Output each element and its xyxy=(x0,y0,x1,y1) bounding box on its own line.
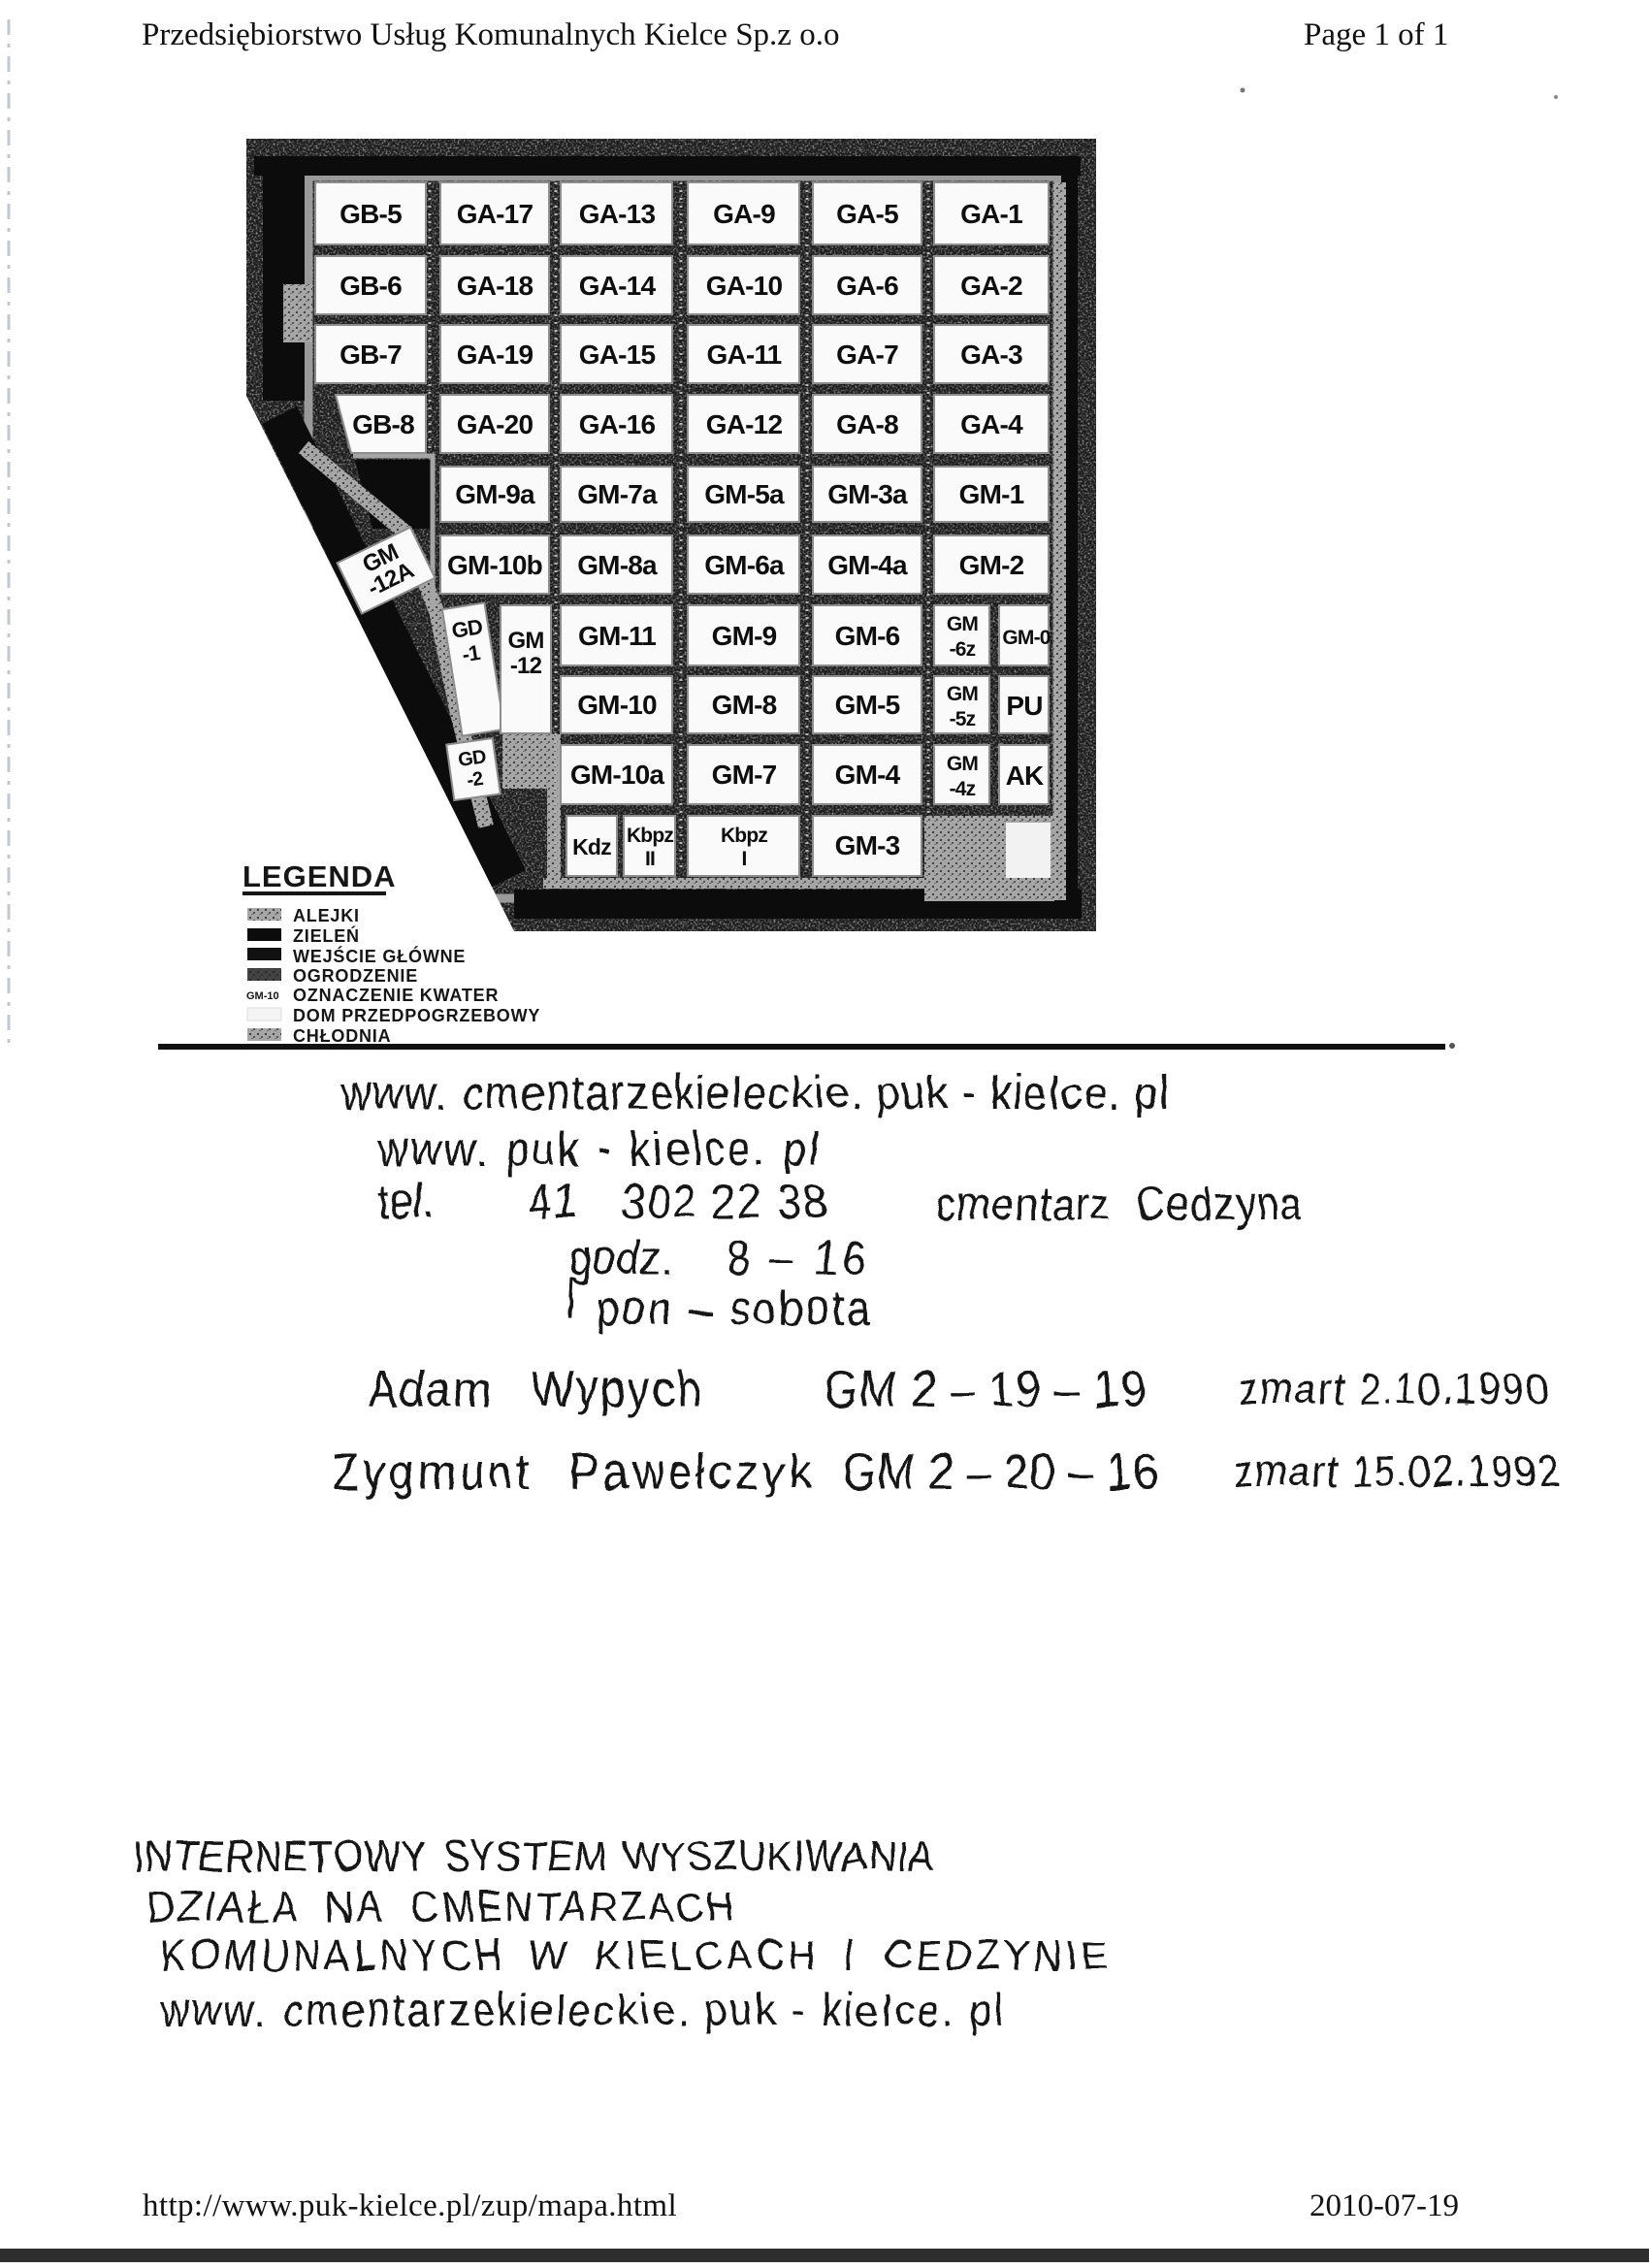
svg-text:GA-6: GA-6 xyxy=(836,271,898,301)
svg-text:GB-8: GB-8 xyxy=(352,409,414,439)
svg-text:GM-6: GM-6 xyxy=(835,621,900,651)
svg-text:GM-3: GM-3 xyxy=(835,830,900,860)
svg-text:GA-13: GA-13 xyxy=(579,199,656,229)
svg-text:GM-7: GM-7 xyxy=(712,760,777,790)
svg-text:ZIELEŃ: ZIELEŃ xyxy=(293,925,360,946)
svg-text:GM-4: GM-4 xyxy=(835,760,901,790)
svg-text:LEGENDA: LEGENDA xyxy=(242,859,397,893)
svg-text:GM-5a: GM-5a xyxy=(704,479,785,509)
svg-text:GM-10b: GM-10b xyxy=(447,550,542,580)
svg-text:GA-19: GA-19 xyxy=(457,340,533,370)
svg-text:GM-2: GM-2 xyxy=(959,550,1024,580)
svg-text:Kbpz: Kbpz xyxy=(721,825,767,847)
svg-text:GM-3a: GM-3a xyxy=(827,479,908,509)
svg-text:-4z: -4z xyxy=(950,778,976,800)
svg-text:GM: GM xyxy=(947,613,979,635)
svg-text:ALEJKI: ALEJKI xyxy=(293,906,360,925)
svg-text:GA-5: GA-5 xyxy=(836,199,898,229)
svg-text:GM-4a: GM-4a xyxy=(827,550,908,580)
svg-text:GA-7: GA-7 xyxy=(836,340,898,370)
svg-text:Kdz: Kdz xyxy=(572,834,611,859)
svg-text:GA-14: GA-14 xyxy=(579,271,657,301)
svg-text:GA-16: GA-16 xyxy=(579,409,656,439)
svg-text:GA-10: GA-10 xyxy=(706,271,783,301)
svg-text:GB-7: GB-7 xyxy=(339,340,402,370)
svg-text:GD: GD xyxy=(457,746,488,771)
svg-text:DOM PRZEDPOGRZEBOWY: DOM PRZEDPOGRZEBOWY xyxy=(293,1006,540,1025)
svg-text:-6z: -6z xyxy=(950,638,976,661)
svg-text:GM-10: GM-10 xyxy=(246,990,279,1002)
svg-text:-5z: -5z xyxy=(950,708,976,730)
svg-text:GM-5: GM-5 xyxy=(835,690,900,720)
svg-text:-12: -12 xyxy=(510,653,542,679)
svg-text:Kbpz: Kbpz xyxy=(627,825,673,847)
svg-text:GM: GM xyxy=(947,683,979,705)
svg-text:GM-9: GM-9 xyxy=(712,621,777,651)
svg-text:GM-10a: GM-10a xyxy=(570,760,665,790)
svg-text:OGRODZENIE: OGRODZENIE xyxy=(293,966,418,986)
svg-text:PU: PU xyxy=(1006,691,1042,721)
svg-text:AK: AK xyxy=(1006,761,1044,791)
svg-text:GA-12: GA-12 xyxy=(706,409,783,439)
svg-text:GM-8a: GM-8a xyxy=(577,550,658,580)
svg-text:GM: GM xyxy=(507,628,543,654)
svg-text:GB-6: GB-6 xyxy=(339,271,402,301)
svg-text:GM-0: GM-0 xyxy=(1002,627,1050,649)
svg-text:GD: GD xyxy=(450,614,484,643)
svg-text:GM-10: GM-10 xyxy=(577,690,657,720)
svg-text:GA-17: GA-17 xyxy=(457,199,533,229)
svg-text:GA-2: GA-2 xyxy=(960,271,1022,301)
svg-text:GA-9: GA-9 xyxy=(713,199,775,229)
svg-text:GM: GM xyxy=(947,753,979,775)
svg-text:GM-8: GM-8 xyxy=(712,690,777,720)
svg-text:GA-20: GA-20 xyxy=(457,409,533,439)
svg-text:GM-7a: GM-7a xyxy=(577,479,658,509)
svg-text:GA-3: GA-3 xyxy=(960,340,1022,370)
svg-text:GM-11: GM-11 xyxy=(578,621,656,651)
svg-text:I: I xyxy=(741,848,746,870)
svg-text:GA-4: GA-4 xyxy=(960,409,1023,439)
svg-text:GB-5: GB-5 xyxy=(339,199,402,229)
svg-text:GM-9a: GM-9a xyxy=(455,479,535,509)
svg-text:GA-8: GA-8 xyxy=(836,409,898,439)
svg-text:GM-1: GM-1 xyxy=(959,479,1024,509)
svg-text:CHŁODNIA: CHŁODNIA xyxy=(293,1026,391,1046)
svg-text:WEJŚCIE GŁÓWNE: WEJŚCIE GŁÓWNE xyxy=(293,946,466,966)
svg-text:II: II xyxy=(645,848,655,870)
svg-text:GA-1: GA-1 xyxy=(960,199,1022,229)
svg-text:GA-11: GA-11 xyxy=(707,340,782,370)
svg-text:GM-6a: GM-6a xyxy=(704,550,785,580)
svg-text:GA-18: GA-18 xyxy=(457,271,533,301)
svg-text:OZNACZENIE KWATER: OZNACZENIE KWATER xyxy=(293,986,499,1005)
svg-text:GA-15: GA-15 xyxy=(579,340,656,370)
